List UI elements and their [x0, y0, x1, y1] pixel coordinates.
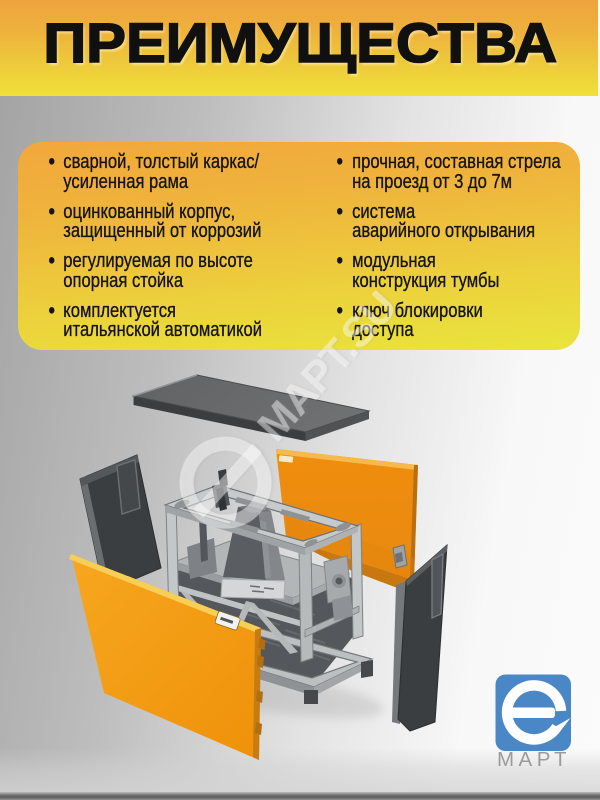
svg-text:МАРТ: МАРТ	[497, 748, 571, 771]
